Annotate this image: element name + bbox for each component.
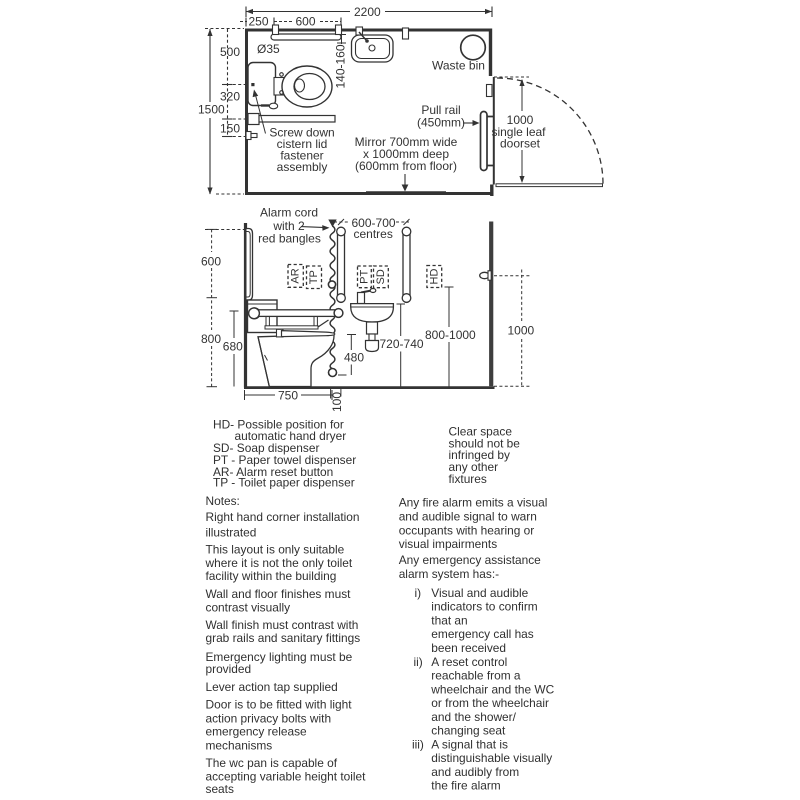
svg-text:800: 800 [201,332,221,346]
svg-text:seats: seats [206,782,234,796]
svg-text:Door is to be fitted with ligh: Door is to be fitted with light [206,697,353,711]
svg-text:AR: AR [290,268,302,283]
svg-text:mechanisms: mechanisms [206,739,273,753]
svg-text:Right hand corner installation: Right hand corner installation [206,510,360,524]
svg-text:Alarm cord: Alarm cord [260,206,318,220]
svg-text:140-160: 140-160 [334,44,348,88]
svg-text:480: 480 [344,351,364,365]
svg-text:(450mm): (450mm) [417,116,465,130]
svg-text:100: 100 [330,392,344,412]
svg-text:TP - Toilet paper dispenser: TP - Toilet paper dispenser [213,476,355,490]
svg-text:(600mm from floor): (600mm from floor) [355,159,457,173]
svg-text:Visual and audible: Visual and audible [431,586,528,600]
svg-text:This layout is only suitable: This layout is only suitable [206,542,345,556]
svg-text:Any fire alarm emits a visual: Any fire alarm emits a visual [399,496,548,510]
svg-text:HD: HD [428,269,440,285]
svg-text:doorset: doorset [500,137,541,151]
svg-text:500: 500 [220,45,240,59]
svg-text:the fire alarm: the fire alarm [431,779,500,793]
svg-text:PT: PT [358,269,370,283]
svg-text:provided: provided [206,662,252,676]
svg-text:i): i) [415,586,422,600]
svg-text:600: 600 [296,15,316,29]
svg-text:visual impairments: visual impairments [399,537,498,551]
svg-text:contrast visually: contrast visually [206,600,291,614]
svg-text:TP: TP [308,270,320,284]
svg-text:Wall finish must contrast with: Wall finish must contrast with [206,618,359,632]
svg-text:1000: 1000 [508,324,535,338]
svg-text:wheelchair and the WC: wheelchair and the WC [430,682,554,696]
svg-text:1500: 1500 [198,103,225,117]
svg-text:and the shower/: and the shower/ [431,710,516,724]
svg-text:iii): iii) [412,737,424,751]
svg-text:2200: 2200 [354,5,381,19]
svg-text:A reset control: A reset control [431,655,507,669]
svg-text:Wall and floor finishes must: Wall and floor finishes must [206,587,352,601]
svg-text:and audibly from: and audibly from [431,765,519,779]
svg-text:centres: centres [354,227,393,241]
svg-text:ii): ii) [414,655,423,669]
svg-text:680: 680 [223,340,243,354]
svg-text:750: 750 [278,389,298,403]
svg-text:or from the wheelchair: or from the wheelchair [431,696,549,710]
svg-text:250: 250 [249,15,269,29]
svg-text:action privacy bolts with: action privacy bolts with [206,712,332,726]
svg-text:emergency release: emergency release [206,724,308,738]
svg-text:Any emergency assistance: Any emergency assistance [399,553,541,567]
svg-text:320: 320 [220,90,240,104]
svg-text:Ø35: Ø35 [257,42,280,56]
svg-text:Waste bin: Waste bin [432,59,485,73]
svg-text:SD: SD [375,269,387,284]
svg-text:A signal that is: A signal that is [431,737,508,751]
svg-text:600: 600 [201,255,221,269]
svg-text:been received: been received [431,641,506,655]
svg-text:150: 150 [220,122,240,136]
svg-text:Notes:: Notes: [206,494,240,508]
svg-text:grab rails and sanitary fittin: grab rails and sanitary fittings [206,631,361,645]
svg-text:assembly: assembly [277,160,328,174]
svg-text:Lever action tap supplied: Lever action tap supplied [206,680,338,694]
svg-text:720-740: 720-740 [380,337,424,351]
svg-text:occupants with hearing or: occupants with hearing or [399,523,535,537]
svg-text:fixtures: fixtures [449,472,487,486]
svg-text:distinguishable visually: distinguishable visually [431,751,552,765]
svg-text:The wc pan is capable of: The wc pan is capable of [206,756,338,770]
svg-text:emergency call has: emergency call has [431,627,533,641]
svg-text:alarm system has:-: alarm system has:- [399,567,499,581]
svg-text:red bangles: red bangles [258,231,321,245]
svg-text:that an: that an [431,614,467,628]
svg-text:800-1000: 800-1000 [425,328,476,342]
svg-text:and audible signal to warn: and audible signal to warn [399,510,537,524]
svg-text:where it is not the only toile: where it is not the only toilet [205,556,353,570]
svg-text:changing seat: changing seat [431,724,506,738]
svg-text:facility within the building: facility within the building [206,569,337,583]
svg-text:indicators to confirm: indicators to confirm [431,600,537,614]
svg-text:reachable from a: reachable from a [431,669,521,683]
svg-text:illustrated: illustrated [206,526,257,540]
